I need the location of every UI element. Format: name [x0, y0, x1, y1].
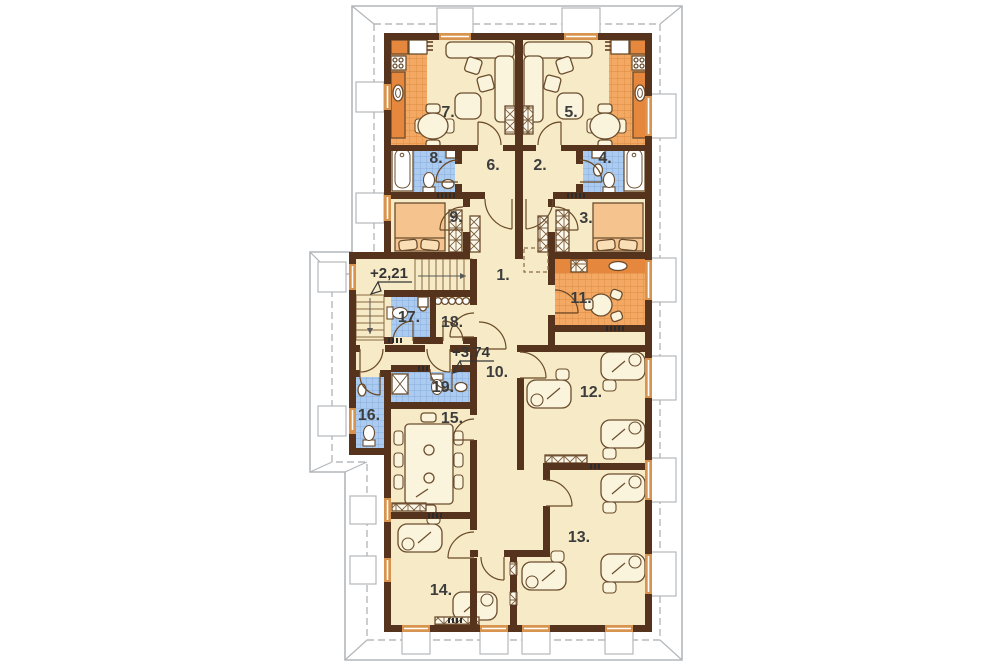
sideboard — [392, 503, 426, 511]
room-label-15: 15. — [441, 410, 463, 427]
sideboard — [545, 455, 587, 463]
room-label-18: 18. — [441, 314, 463, 331]
room-label-4: 4. — [598, 150, 611, 167]
chimney-shaft — [505, 106, 515, 134]
level-label: +3,74 — [452, 344, 491, 361]
room-label-19: 19. — [432, 379, 454, 396]
kitchen-counter-11 — [555, 259, 645, 273]
toilet-icon — [363, 426, 375, 447]
room-label-17: 17. — [398, 309, 420, 326]
room-label-10: 10. — [486, 364, 508, 381]
room-label-9: 9. — [449, 209, 462, 226]
room-label-6: 6. — [486, 157, 499, 174]
coffee-table-left — [455, 93, 481, 119]
staircase-lower — [356, 295, 384, 340]
duct — [510, 562, 517, 575]
room-label-2: 2. — [533, 157, 546, 174]
bed-left — [395, 203, 445, 251]
wardrobe — [556, 210, 569, 252]
room-label-5: 5. — [564, 104, 577, 121]
level-label: +2,21 — [370, 265, 408, 282]
sink-icon — [455, 383, 467, 392]
sink-icon — [358, 384, 366, 396]
room-label-16: 16. — [358, 407, 380, 424]
duct — [510, 592, 517, 605]
chimney-shaft — [523, 106, 533, 134]
hall-closet — [470, 216, 480, 252]
floor-plan-drawing: 1. 2. 3. 4. 5. 6. 7. 8. 9. 10. 11. 12. 1… — [0, 0, 1000, 666]
toilet-icon — [603, 173, 615, 194]
bathtub-right — [624, 146, 645, 191]
conference-table — [394, 413, 463, 514]
bathtub-left — [392, 146, 413, 191]
toilet-icon — [423, 173, 435, 194]
staircase-upper — [415, 259, 472, 292]
bed-right — [593, 203, 643, 251]
room-label-1: 1. — [496, 267, 509, 284]
room-label-3: 3. — [579, 210, 592, 227]
floor-plan-page: 1. 2. 3. 4. 5. 6. 7. 8. 9. 10. 11. 12. 1… — [0, 0, 1000, 666]
room-label-7: 7. — [441, 104, 454, 121]
room-label-11: 11. — [570, 290, 591, 307]
shelf — [418, 297, 428, 307]
room-label-14: 14. — [430, 582, 452, 599]
room-label-8: 8. — [429, 150, 442, 167]
room-label-12: 12. — [580, 384, 602, 401]
sink-icon — [442, 180, 454, 189]
room-label-13: 13. — [568, 529, 590, 546]
